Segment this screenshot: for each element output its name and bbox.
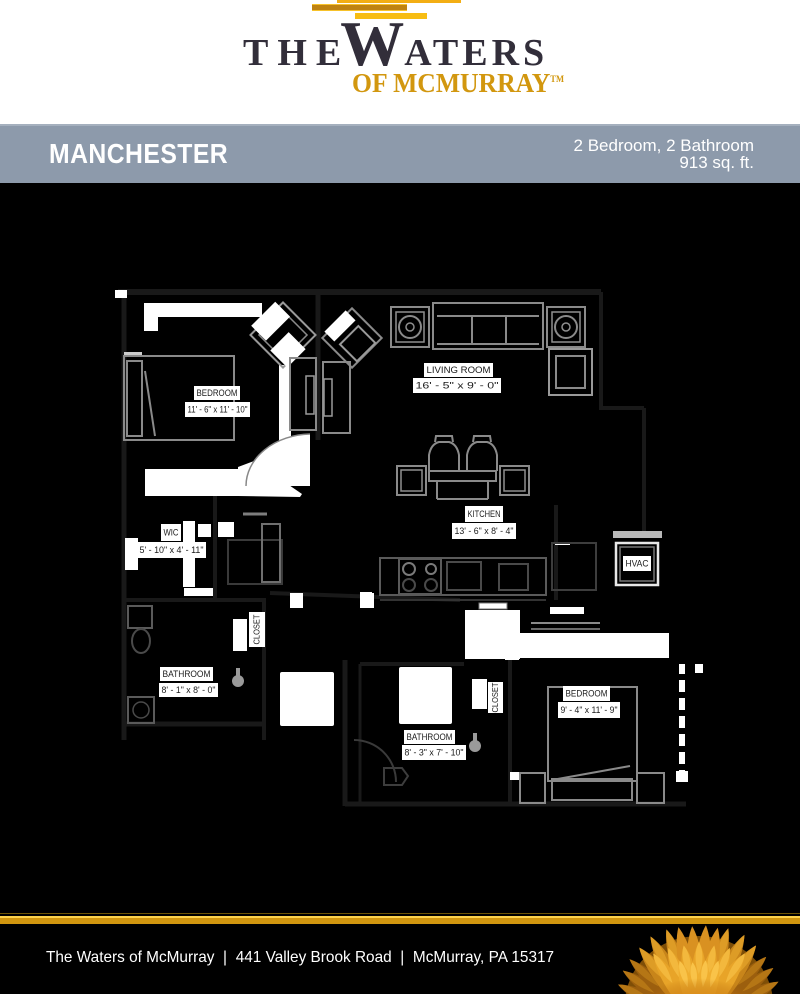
svg-text:KITCHEN: KITCHEN <box>468 509 501 520</box>
svg-text:BATHROOM: BATHROOM <box>407 732 453 742</box>
svg-text:LIVING ROOM: LIVING ROOM <box>427 365 491 376</box>
svg-text:BATHROOM: BATHROOM <box>163 669 211 679</box>
svg-text:16' - 5" x 9' - 0": 16' - 5" x 9' - 0" <box>416 381 499 392</box>
svg-text:CLOSET: CLOSET <box>490 683 500 713</box>
svg-text:HVAC: HVAC <box>626 559 649 569</box>
svg-text:8' - 3" x 7' - 10": 8' - 3" x 7' - 10" <box>405 748 464 759</box>
svg-text:BEDROOM: BEDROOM <box>197 388 238 399</box>
svg-text:5' - 10" x 4' - 11": 5' - 10" x 4' - 11" <box>140 545 204 556</box>
svg-text:8' - 1" x 8' - 0": 8' - 1" x 8' - 0" <box>162 685 216 696</box>
svg-text:CLOSET: CLOSET <box>251 615 261 645</box>
svg-text:11' - 6" x 11' - 10": 11' - 6" x 11' - 10" <box>188 405 248 416</box>
svg-text:13' - 6" x 8' - 4": 13' - 6" x 8' - 4" <box>455 526 514 537</box>
svg-text:WIC: WIC <box>164 528 179 539</box>
svg-text:BEDROOM: BEDROOM <box>566 689 608 699</box>
svg-text:9' - 4" x 11' - 9": 9' - 4" x 11' - 9" <box>561 705 618 716</box>
